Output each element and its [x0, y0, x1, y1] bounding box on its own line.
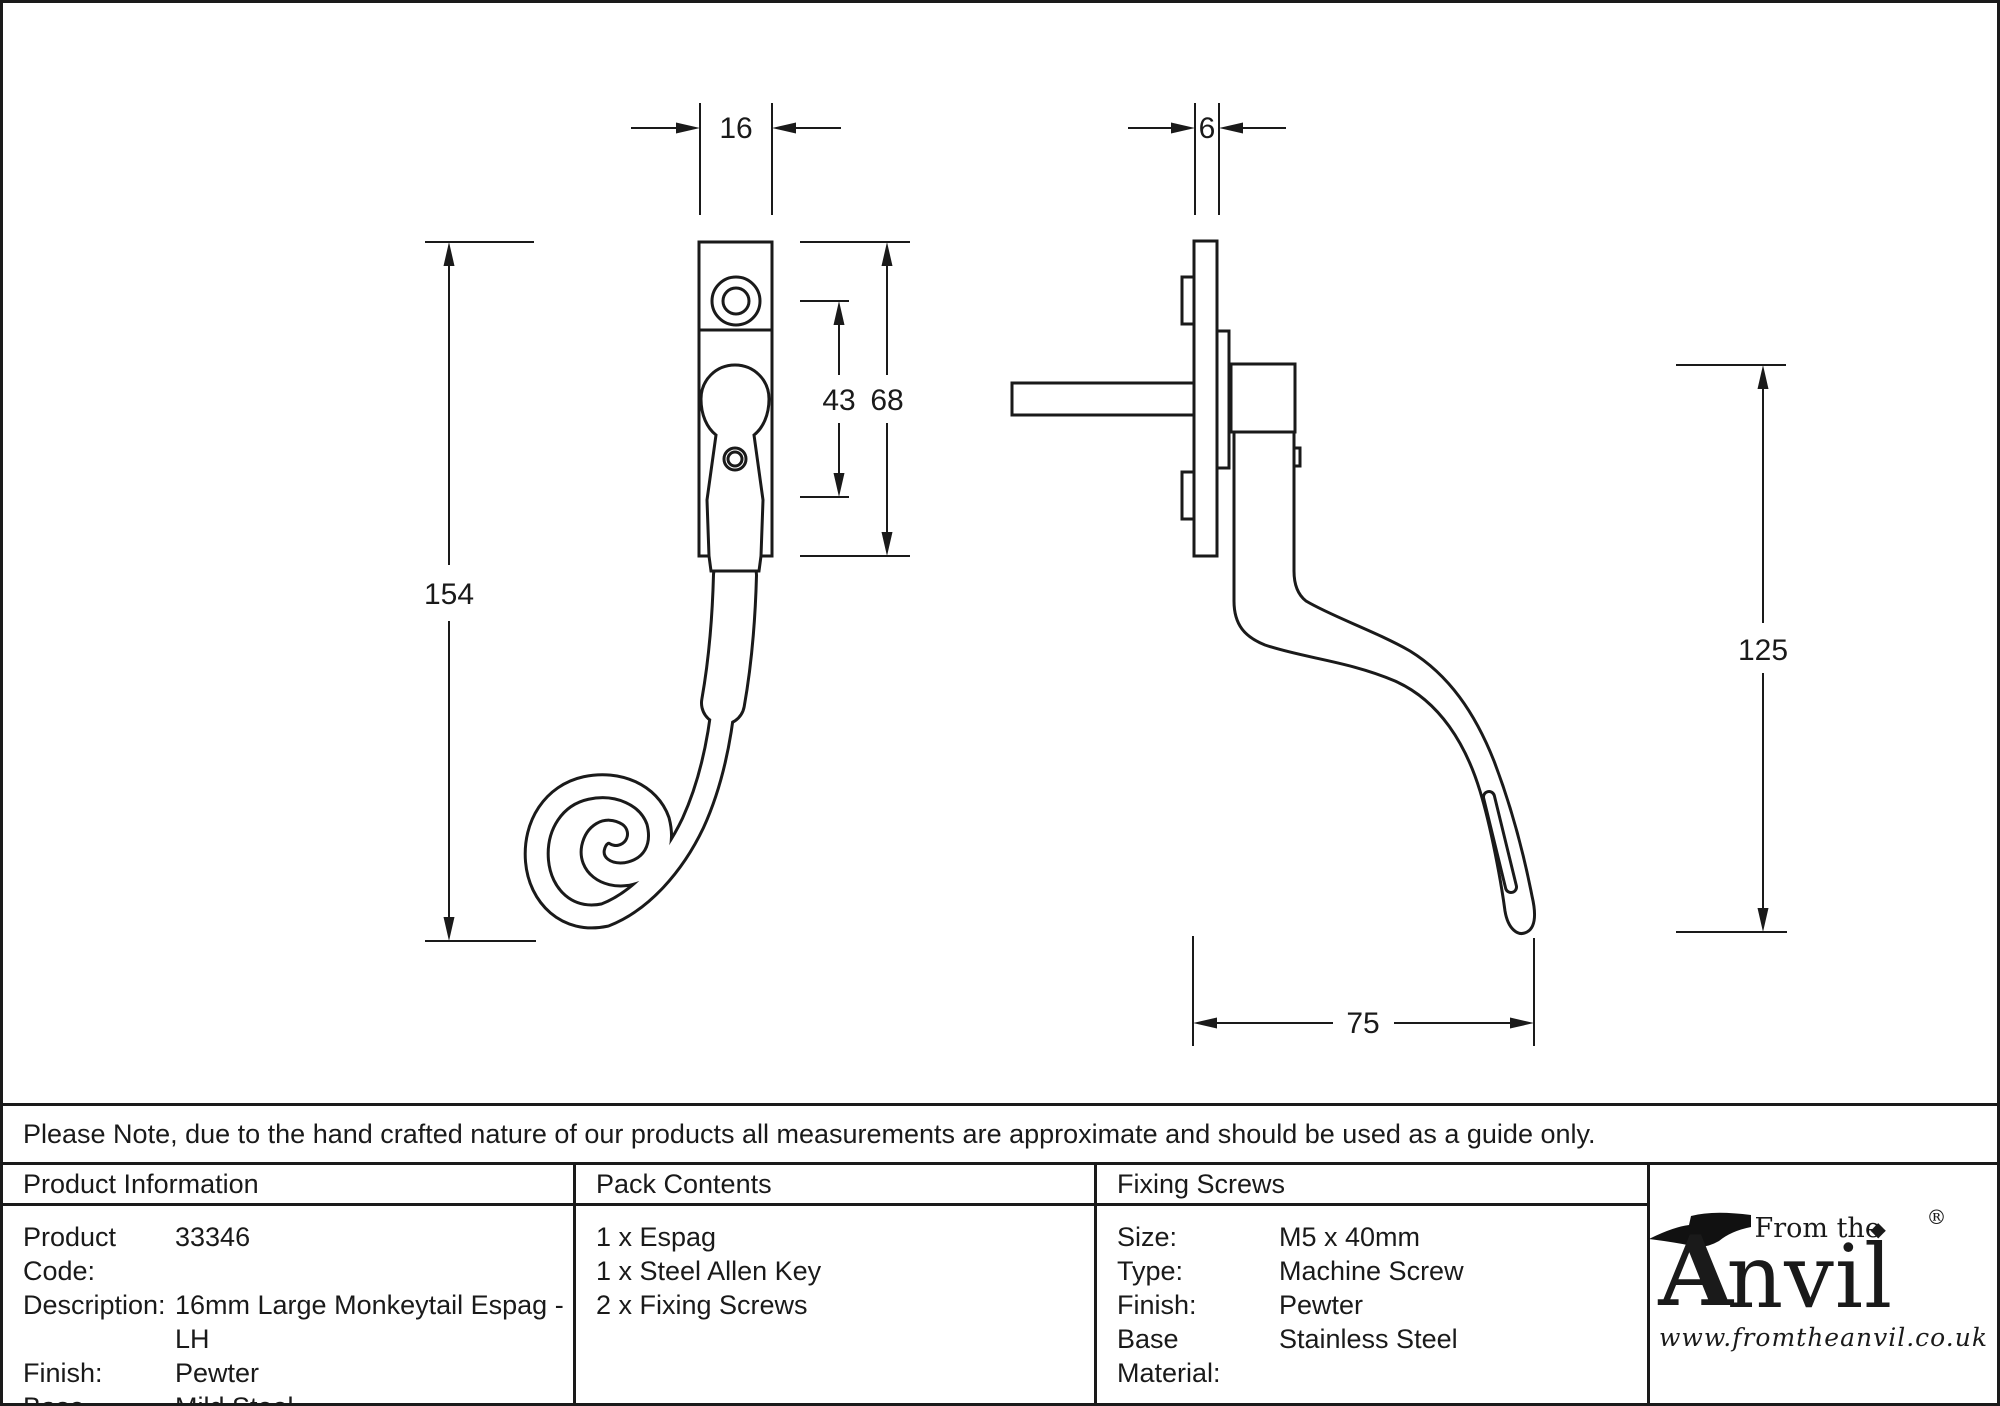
row-label: Size:: [1117, 1220, 1279, 1254]
product-information-header: Product Information: [3, 1165, 573, 1206]
table-row: Product Code: 33346: [23, 1220, 573, 1288]
brand-website: www.fromtheanvil.co.uk: [1659, 1323, 1989, 1352]
side-screw-boss-bottom: [1182, 472, 1194, 519]
dim-label: 125: [1738, 634, 1788, 667]
side-catch-nib: [1294, 448, 1300, 466]
dim-label: 43: [822, 384, 855, 417]
pack-item: 1 x Espag: [596, 1220, 1094, 1254]
pack-contents-column: Pack Contents 1 x Espag 1 x Steel Allen …: [573, 1165, 1094, 1403]
note-row: Please Note, due to the hand crafted nat…: [3, 1103, 1997, 1165]
dim-front-overall-length: 154: [424, 242, 536, 941]
row-label: Base Material:: [23, 1390, 175, 1406]
table-row: Type: Machine Screw: [1117, 1254, 1647, 1288]
row-value: Pewter: [175, 1356, 259, 1390]
row-label: Base Material:: [1117, 1322, 1279, 1390]
registered-mark: ®: [1927, 1205, 1947, 1229]
dim-side-projection: 75: [1193, 936, 1534, 1046]
dim-label: 6: [1199, 112, 1216, 145]
technical-drawing: 16 154: [3, 3, 2000, 1103]
row-label: Product Code:: [23, 1220, 175, 1288]
brand-suffix: nvil: [1727, 1235, 1894, 1319]
side-knob: [1231, 364, 1295, 432]
brand-column: A From the ◆ nvil ® www.fromtheanvil.co.…: [1647, 1165, 1997, 1403]
row-value: Mild Steel: [175, 1390, 294, 1406]
side-spindle: [1012, 383, 1194, 415]
row-value: 16mm Large Monkeytail Espag - LH: [175, 1288, 573, 1356]
pack-item: 2 x Fixing Screws: [596, 1288, 1094, 1322]
table-row: Base Material: Stainless Steel: [1117, 1322, 1647, 1390]
front-monkeytail-curl: [537, 575, 735, 916]
measurement-note: Please Note, due to the hand crafted nat…: [23, 1119, 1596, 1150]
brand-wordmark: A From the ◆ nvil ®: [1659, 1209, 1989, 1321]
side-handle-limb: [1234, 432, 1535, 933]
dim-side-drop-height: 125: [1676, 365, 1788, 932]
row-label: Description:: [23, 1288, 175, 1356]
table-row: Finish: Pewter: [23, 1356, 573, 1390]
brand-initial: A: [1659, 1227, 1733, 1317]
side-screw-boss-top: [1182, 277, 1194, 324]
fixing-screws-column: Fixing Screws Size: M5 x 40mm Type: Mach…: [1094, 1165, 1647, 1403]
row-label: Finish:: [1117, 1288, 1279, 1322]
side-backplate: [1194, 241, 1217, 556]
row-value: Machine Screw: [1279, 1254, 1464, 1288]
info-table: Product Information Product Code: 33346 …: [3, 1165, 1997, 1403]
row-value: 33346: [175, 1220, 250, 1288]
dim-label: 154: [424, 578, 474, 611]
dim-label: 16: [719, 112, 752, 145]
row-label: Finish:: [23, 1356, 175, 1390]
table-row: Base Material: Mild Steel: [23, 1390, 573, 1406]
table-row: Description: 16mm Large Monkeytail Espag…: [23, 1288, 573, 1356]
fixing-screws-header: Fixing Screws: [1097, 1165, 1647, 1206]
front-view: [537, 242, 772, 916]
product-information-column: Product Information Product Code: 33346 …: [3, 1165, 573, 1403]
dim-front-width: 16: [631, 103, 841, 215]
dim-side-plate-thickness: 6: [1128, 103, 1286, 215]
table-row: Finish: Pewter: [1117, 1288, 1647, 1322]
product-spec-sheet: 16 154: [0, 0, 2000, 1406]
table-row: Size: M5 x 40mm: [1117, 1220, 1647, 1254]
pack-contents-header: Pack Contents: [576, 1165, 1094, 1206]
dim-label: 68: [870, 384, 903, 417]
row-value: Pewter: [1279, 1288, 1363, 1322]
dim-front-screw-centre: 43: [800, 301, 856, 497]
dim-label: 75: [1346, 1007, 1379, 1040]
row-value: M5 x 40mm: [1279, 1220, 1420, 1254]
side-base-layer: [1217, 331, 1229, 468]
row-value: Stainless Steel: [1279, 1322, 1458, 1390]
pack-item: 1 x Steel Allen Key: [596, 1254, 1094, 1288]
brand-logo: A From the ◆ nvil ® www.fromtheanvil.co.…: [1659, 1209, 1989, 1359]
side-view: [1012, 241, 1535, 933]
row-label: Type:: [1117, 1254, 1279, 1288]
